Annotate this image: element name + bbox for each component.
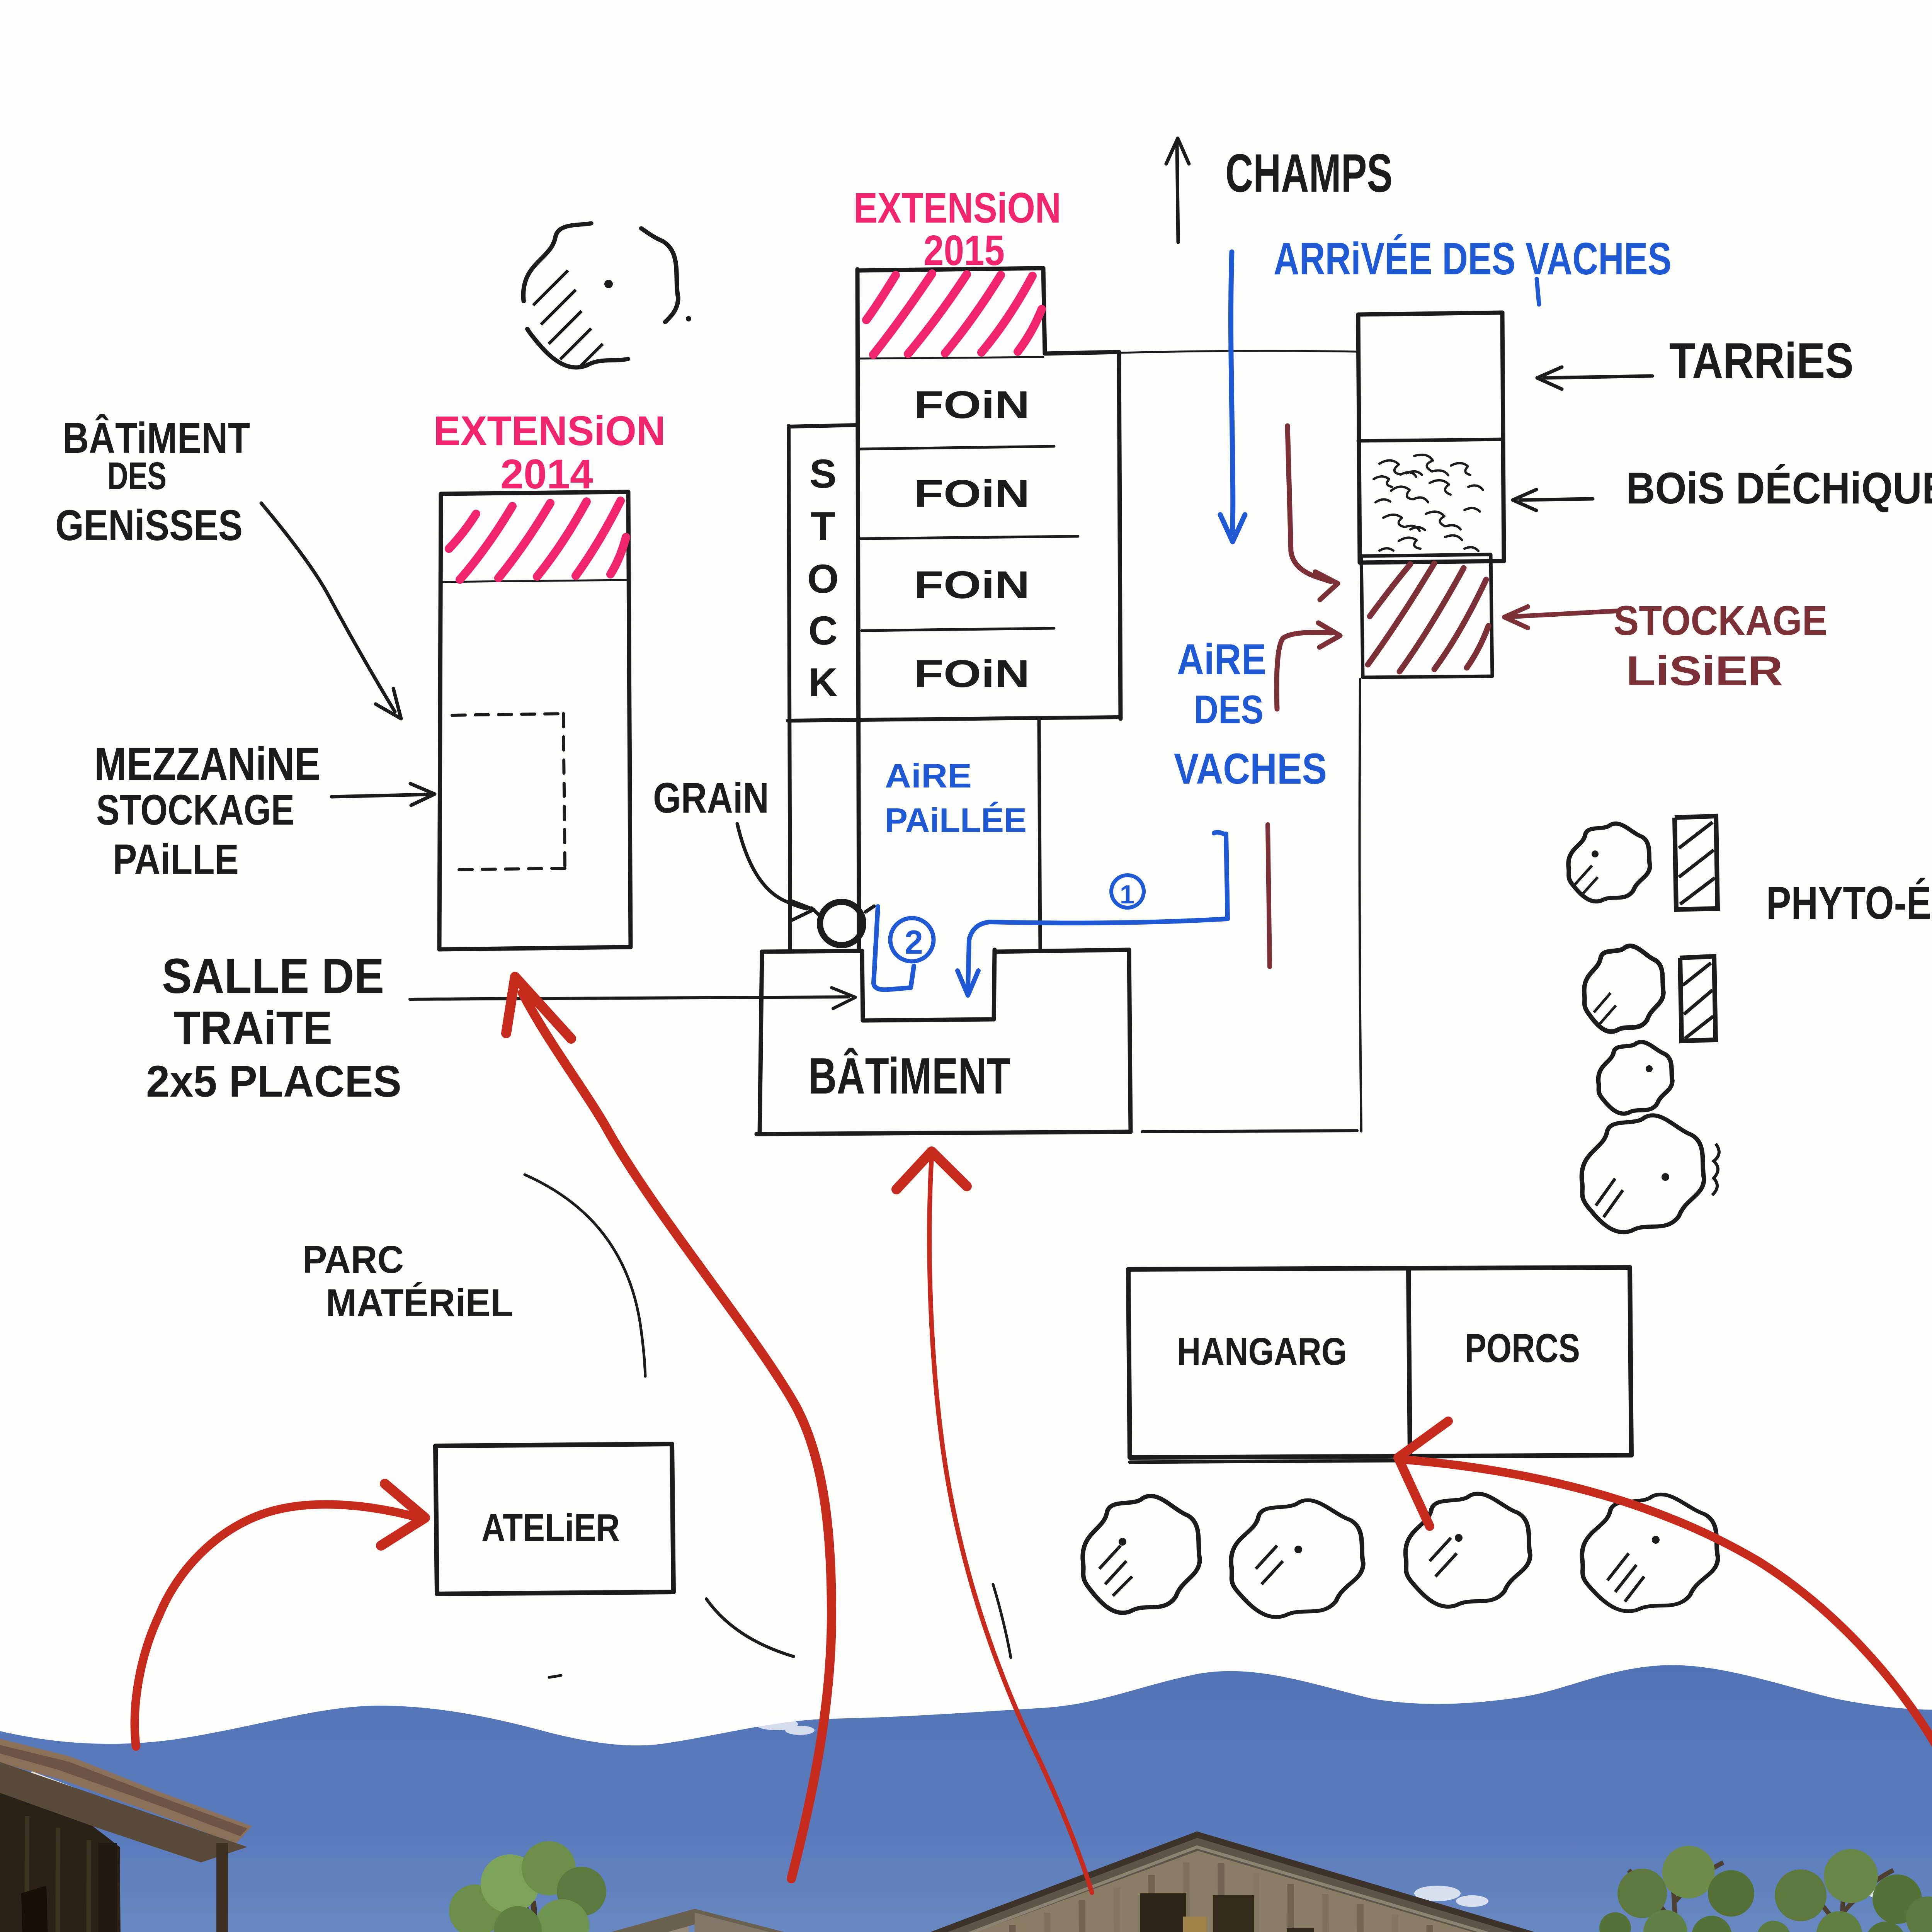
svg-text:2x5 PLACES: 2x5 PLACES	[146, 1057, 401, 1106]
svg-text:2015: 2015	[923, 227, 1005, 274]
svg-text:AiRE: AiRE	[1177, 635, 1266, 684]
svg-text:PAiLLE: PAiLLE	[113, 836, 239, 883]
svg-text:MEZZANiNE: MEZZANiNE	[94, 738, 320, 790]
svg-text:MATÉRiEL: MATÉRiEL	[326, 1281, 513, 1325]
svg-text:FOiN: FOiN	[914, 472, 1030, 515]
svg-text:AiRE: AiRE	[885, 757, 972, 795]
svg-text:GRAiN: GRAiN	[653, 774, 769, 822]
svg-text:PHYTO-ÉPURATiON: PHYTO-ÉPURATiON	[1766, 877, 1932, 929]
svg-text:FOiN: FOiN	[914, 563, 1030, 607]
svg-text:DES: DES	[107, 454, 167, 498]
svg-text:VACHES: VACHES	[1174, 745, 1327, 793]
svg-text:DES: DES	[1194, 687, 1264, 732]
svg-text:EXTENSiON: EXTENSiON	[434, 407, 665, 454]
svg-text:2014: 2014	[500, 451, 593, 497]
svg-text:BÂTiMENT: BÂTiMENT	[808, 1048, 1010, 1104]
svg-text:SALLE DE: SALLE DE	[162, 949, 384, 1004]
svg-text:ATELiER: ATELiER	[481, 1506, 620, 1549]
svg-text:T: T	[811, 504, 835, 549]
svg-text:EXTENSiON: EXTENSiON	[854, 184, 1061, 232]
svg-text:O: O	[807, 556, 839, 602]
svg-text:HANGARG: HANGARG	[1177, 1330, 1347, 1373]
svg-text:LiSiER: LiSiER	[1626, 647, 1783, 694]
svg-text:PARC: PARC	[303, 1238, 404, 1281]
svg-text:TARRiES: TARRiES	[1669, 332, 1854, 389]
svg-text:ARRiVÉE DES VACHES: ARRiVÉE DES VACHES	[1274, 233, 1672, 284]
svg-text:STOCKAGE: STOCKAGE	[96, 786, 294, 834]
svg-text:1: 1	[1120, 880, 1134, 909]
svg-text:BOiS DÉCHiQUETÉ: BOiS DÉCHiQUETÉ	[1626, 464, 1932, 513]
svg-text:PAiLLÉE: PAiLLÉE	[885, 801, 1027, 839]
svg-text:2: 2	[905, 924, 923, 961]
svg-text:C: C	[808, 608, 838, 653]
svg-text:K: K	[808, 660, 838, 705]
svg-text:PORCS: PORCS	[1465, 1326, 1580, 1371]
svg-text:S: S	[810, 451, 837, 497]
svg-text:FOiN: FOiN	[914, 652, 1030, 696]
svg-text:TRAiTE: TRAiTE	[173, 1002, 332, 1054]
svg-text:CHAMPS: CHAMPS	[1225, 143, 1393, 203]
svg-text:STOCKAGE: STOCKAGE	[1614, 597, 1827, 644]
svg-text:GENiSSES: GENiSSES	[55, 501, 243, 549]
svg-text:FOiN: FOiN	[914, 383, 1030, 427]
